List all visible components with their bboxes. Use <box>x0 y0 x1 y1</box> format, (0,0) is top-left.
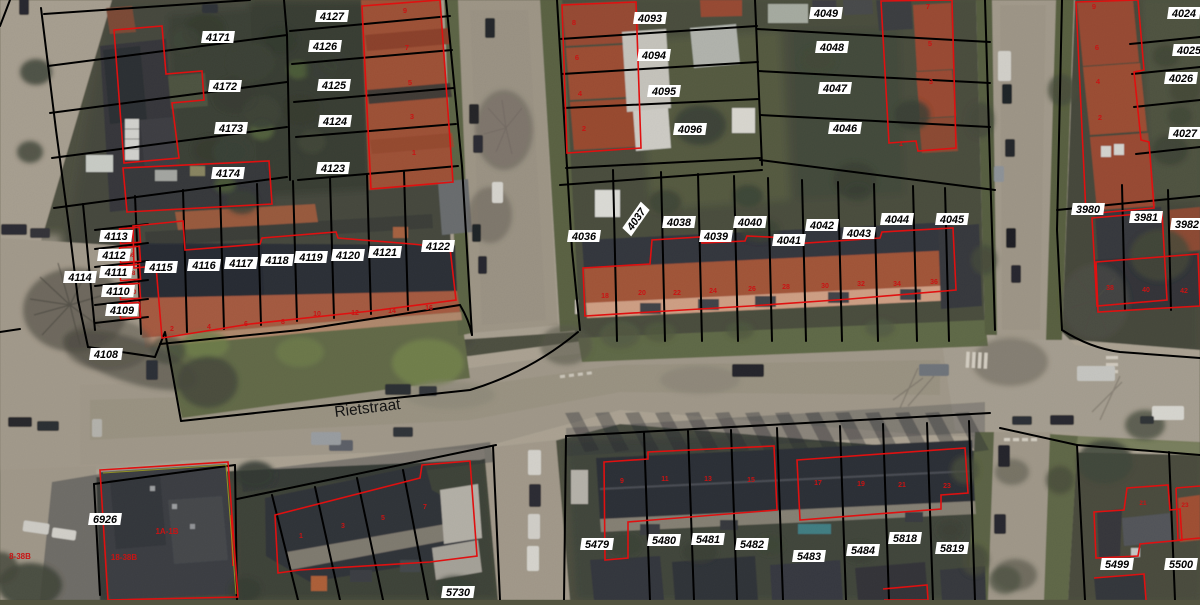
svg-text:14: 14 <box>388 308 396 315</box>
svg-text:5730: 5730 <box>446 587 470 599</box>
svg-text:20: 20 <box>638 290 646 297</box>
svg-text:36: 36 <box>930 279 938 286</box>
svg-text:4046: 4046 <box>832 123 858 135</box>
svg-text:4115: 4115 <box>148 262 173 274</box>
svg-text:6: 6 <box>244 321 248 328</box>
svg-text:8-38B: 8-38B <box>9 552 31 561</box>
svg-text:26: 26 <box>748 286 756 293</box>
svg-text:4095: 4095 <box>651 86 677 98</box>
svg-text:3: 3 <box>929 77 933 86</box>
svg-text:4041: 4041 <box>776 235 801 247</box>
svg-text:3980: 3980 <box>1076 204 1100 216</box>
svg-text:5481: 5481 <box>696 534 720 546</box>
svg-text:4110: 4110 <box>105 286 129 298</box>
svg-text:4044: 4044 <box>884 214 909 226</box>
svg-text:1A-1B: 1A-1B <box>155 527 178 536</box>
svg-text:4171: 4171 <box>205 32 230 44</box>
svg-text:7: 7 <box>405 43 409 52</box>
svg-text:1: 1 <box>899 139 903 148</box>
svg-text:3981: 3981 <box>1134 212 1158 224</box>
svg-text:2: 2 <box>582 124 586 133</box>
svg-text:4047: 4047 <box>822 83 848 95</box>
svg-text:42: 42 <box>1180 288 1188 295</box>
svg-text:9: 9 <box>1092 2 1096 11</box>
svg-text:18-38B: 18-38B <box>111 553 137 562</box>
svg-text:7: 7 <box>423 504 427 511</box>
svg-text:5818: 5818 <box>893 533 917 545</box>
svg-text:5: 5 <box>408 78 412 87</box>
svg-text:23: 23 <box>943 483 951 490</box>
svg-text:5819: 5819 <box>940 543 964 555</box>
svg-text:34: 34 <box>893 281 901 288</box>
svg-text:4121: 4121 <box>372 247 397 259</box>
svg-text:4108: 4108 <box>93 349 118 361</box>
svg-text:22: 22 <box>673 290 681 297</box>
svg-text:7: 7 <box>926 2 930 11</box>
svg-text:10: 10 <box>313 311 321 318</box>
svg-text:4038: 4038 <box>666 217 691 229</box>
svg-text:4174: 4174 <box>215 168 240 180</box>
svg-text:4122: 4122 <box>425 241 450 253</box>
svg-text:8: 8 <box>281 319 285 326</box>
svg-text:4114: 4114 <box>67 272 91 284</box>
svg-text:4125: 4125 <box>321 80 347 92</box>
svg-text:4172: 4172 <box>212 81 237 93</box>
svg-text:24: 24 <box>709 288 717 295</box>
svg-text:2: 2 <box>1098 113 1102 122</box>
svg-text:3: 3 <box>410 112 414 121</box>
svg-text:4025: 4025 <box>1176 45 1200 57</box>
svg-text:4045: 4045 <box>939 214 965 226</box>
svg-text:4039: 4039 <box>703 231 728 243</box>
svg-text:8: 8 <box>572 18 576 27</box>
svg-text:4026: 4026 <box>1168 73 1194 85</box>
svg-text:19: 19 <box>857 481 865 488</box>
svg-text:13: 13 <box>704 476 712 483</box>
svg-text:9: 9 <box>620 478 624 485</box>
svg-text:4111: 4111 <box>104 267 127 279</box>
svg-text:4043: 4043 <box>846 228 871 240</box>
svg-text:4173: 4173 <box>218 123 243 135</box>
svg-text:38: 38 <box>1106 285 1114 292</box>
svg-text:3982: 3982 <box>1175 219 1199 231</box>
svg-text:4126: 4126 <box>312 41 338 53</box>
svg-text:4048: 4048 <box>819 42 844 54</box>
svg-text:4118: 4118 <box>264 255 288 267</box>
svg-text:21: 21 <box>898 482 906 489</box>
svg-text:5480: 5480 <box>652 535 676 547</box>
svg-text:5484: 5484 <box>851 545 875 557</box>
svg-text:4024: 4024 <box>1171 8 1196 20</box>
svg-text:4124: 4124 <box>322 116 347 128</box>
svg-text:5483: 5483 <box>797 551 821 563</box>
svg-text:4123: 4123 <box>320 163 345 175</box>
svg-text:5479: 5479 <box>585 539 609 551</box>
svg-text:6: 6 <box>575 53 579 62</box>
svg-text:17: 17 <box>814 480 822 487</box>
svg-text:5500: 5500 <box>1169 559 1193 571</box>
svg-text:23: 23 <box>1181 502 1189 509</box>
svg-text:1: 1 <box>299 533 303 540</box>
svg-text:4112: 4112 <box>101 250 125 262</box>
svg-text:4117: 4117 <box>228 258 253 270</box>
svg-text:4036: 4036 <box>571 231 597 243</box>
svg-text:4049: 4049 <box>813 8 838 20</box>
svg-text:4127: 4127 <box>319 11 345 23</box>
svg-text:4: 4 <box>207 324 211 331</box>
svg-text:32: 32 <box>857 281 865 288</box>
svg-text:28: 28 <box>782 284 790 291</box>
svg-text:4093: 4093 <box>637 13 662 25</box>
svg-text:12: 12 <box>351 310 359 317</box>
svg-text:15: 15 <box>747 477 755 484</box>
svg-text:16: 16 <box>425 305 433 312</box>
svg-text:1: 1 <box>412 148 416 157</box>
svg-text:18: 18 <box>601 293 609 300</box>
svg-text:4094: 4094 <box>641 50 666 62</box>
svg-text:4113: 4113 <box>103 231 127 243</box>
svg-text:4040: 4040 <box>737 217 762 229</box>
svg-text:5: 5 <box>381 515 385 522</box>
svg-text:21: 21 <box>1139 500 1147 507</box>
svg-text:4119: 4119 <box>298 252 322 264</box>
svg-text:11: 11 <box>661 476 669 483</box>
svg-text:6: 6 <box>1095 43 1099 52</box>
svg-text:5482: 5482 <box>740 539 764 551</box>
svg-text:5499: 5499 <box>1105 559 1129 571</box>
svg-text:3: 3 <box>341 523 345 530</box>
svg-text:4120: 4120 <box>335 250 360 262</box>
svg-text:4109: 4109 <box>109 305 134 317</box>
svg-text:4027: 4027 <box>1172 128 1198 140</box>
svg-text:6926: 6926 <box>93 514 118 526</box>
svg-text:5: 5 <box>928 39 932 48</box>
svg-text:2: 2 <box>170 326 174 333</box>
svg-text:30: 30 <box>821 283 829 290</box>
svg-text:40: 40 <box>1142 287 1150 294</box>
svg-text:4042: 4042 <box>809 220 834 232</box>
svg-text:4096: 4096 <box>677 124 703 136</box>
svg-text:9: 9 <box>403 6 407 15</box>
svg-text:4116: 4116 <box>191 260 216 272</box>
